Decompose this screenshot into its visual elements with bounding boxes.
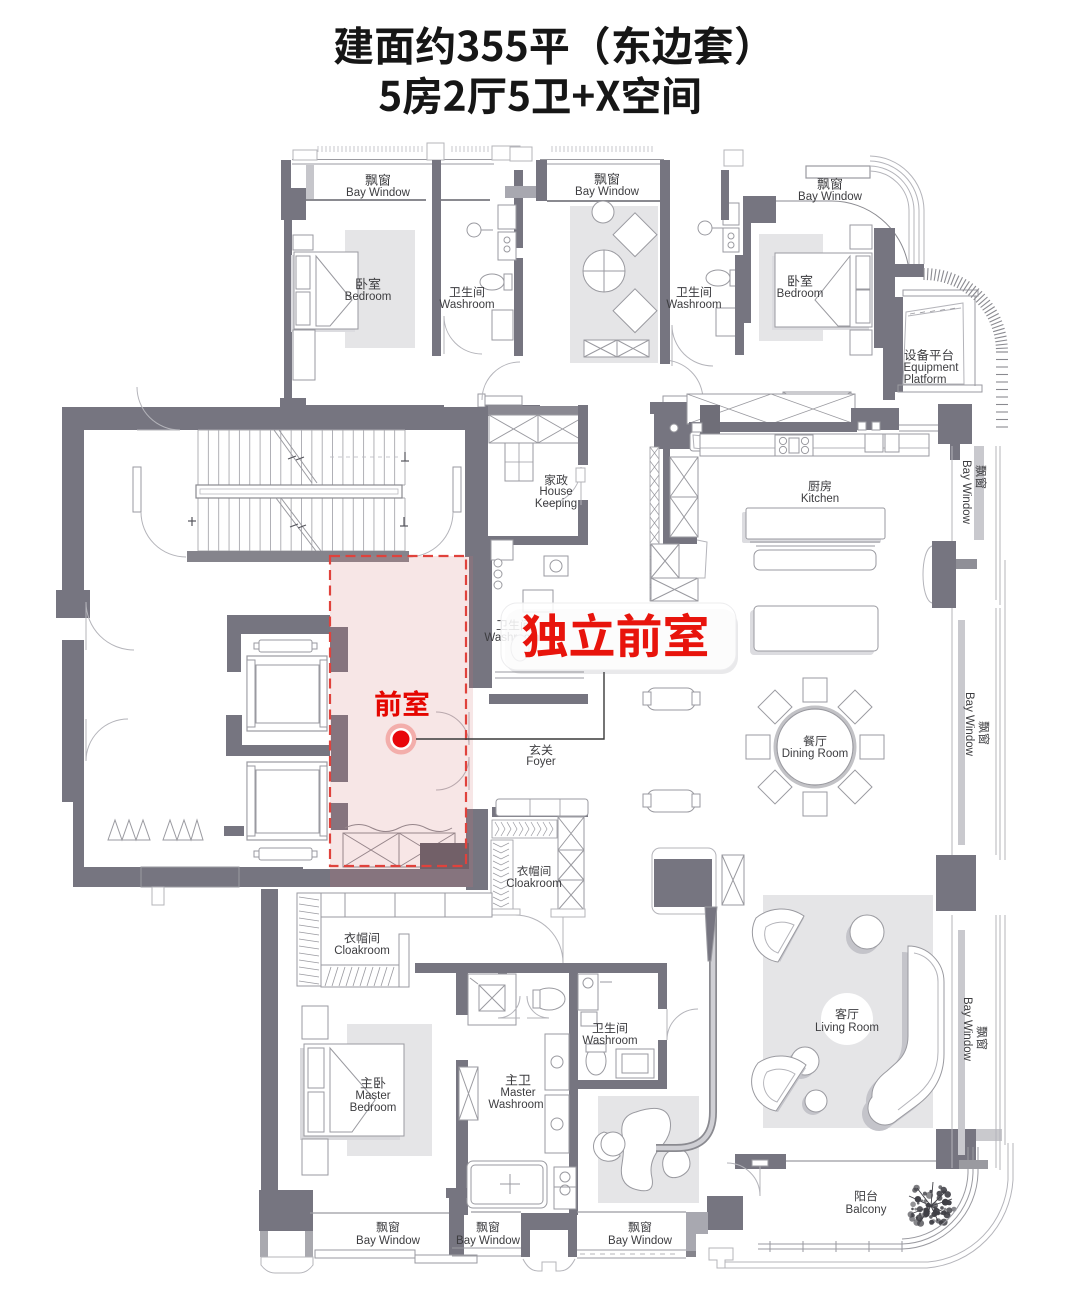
svg-text:Bedroom: Bedroom: [350, 1102, 397, 1114]
svg-text:Bay Window: Bay Window: [961, 997, 973, 1062]
svg-text:Bay Window: Bay Window: [356, 1235, 421, 1247]
svg-text:Bay Window: Bay Window: [575, 186, 640, 198]
svg-text:Living Room: Living Room: [815, 1022, 879, 1034]
svg-text:Bay Window: Bay Window: [456, 1235, 521, 1247]
svg-text:Bay Window: Bay Window: [608, 1235, 673, 1247]
svg-text:Cloakroom: Cloakroom: [334, 945, 390, 957]
svg-text:Bedroom: Bedroom: [777, 288, 824, 300]
svg-text:Bay Window: Bay Window: [346, 187, 411, 199]
svg-text:Bedroom: Bedroom: [345, 291, 392, 303]
svg-text:Equipment: Equipment: [904, 362, 960, 374]
svg-text:Platform: Platform: [904, 374, 947, 386]
svg-text:Washroom: Washroom: [439, 299, 494, 311]
svg-text:Bay Window: Bay Window: [963, 692, 975, 757]
svg-text:House: House: [539, 486, 572, 498]
svg-text:Washroom: Washroom: [582, 1035, 637, 1047]
svg-text:Keeping: Keeping: [535, 498, 577, 510]
svg-text:Cloakroom: Cloakroom: [506, 878, 562, 890]
svg-text:Bay Window: Bay Window: [960, 460, 972, 525]
svg-text:Master: Master: [500, 1087, 535, 1099]
svg-text:Master: Master: [355, 1090, 390, 1102]
svg-text:Washroom: Washroom: [488, 1099, 543, 1111]
svg-text:Dining Room: Dining Room: [782, 748, 848, 760]
svg-text:Kitchen: Kitchen: [801, 493, 839, 505]
svg-text:Bay Window: Bay Window: [798, 191, 863, 203]
svg-text:Foyer: Foyer: [526, 756, 556, 768]
svg-text:Balcony: Balcony: [846, 1204, 887, 1216]
svg-text:Washroom: Washroom: [666, 299, 721, 311]
